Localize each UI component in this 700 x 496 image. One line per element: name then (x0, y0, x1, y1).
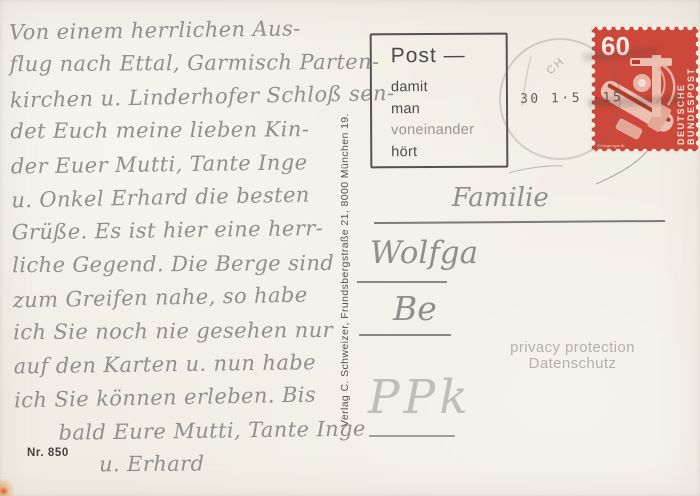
privacy-line-de: Datenschutz (465, 356, 680, 372)
message-line: Von einem herrlichen Aus- (9, 12, 357, 50)
message-line: zum Greifen nahe, so habe (12, 278, 361, 318)
message-line: kirchen u. Linderhofer Schloß sen- (10, 77, 359, 117)
postmark-date: 30 1·5 -15 (520, 90, 624, 107)
message-line: Grüße. Es ist hier eine herr- (12, 212, 360, 250)
slogan-line: voneinander (391, 120, 506, 142)
address-underline (359, 334, 451, 336)
slogan-line: damit (391, 77, 506, 99)
message-line: det Euch meine lieben Kin- (10, 113, 358, 149)
postcard-back: Von einem herrlichen Aus- flug nach Etta… (0, 0, 700, 496)
message-line: bald Eure Mutti, Tante Inge (58, 412, 362, 450)
stamp-country-label: DEUTSCHE BUNDESPOST (676, 27, 696, 145)
publisher-imprint: Verlag C. Schweizer, Frundsbergstraße 21… (339, 88, 351, 452)
privacy-line-en: privacy protection (465, 340, 680, 356)
address-underline (374, 220, 665, 224)
slogan-line: man (391, 98, 506, 120)
postcode-underline (369, 435, 455, 437)
message-line: liche Gegend. Die Berge sind (12, 247, 360, 283)
address-recipient-name: Wolfga (370, 235, 478, 271)
address-recipient-family: Familie (452, 183, 549, 213)
slogan-line: hört (391, 141, 506, 163)
aged-corner-speck (0, 487, 8, 495)
handwritten-message: Von einem herrlichen Aus- flug nach Etta… (9, 12, 363, 485)
postmark-slogan-box: Post — damit man voneinander hört (370, 33, 509, 169)
postcode-scribble: PPk (368, 370, 472, 425)
message-line: u. Erhard (99, 447, 363, 482)
slogan-heading: Post — (391, 44, 506, 69)
address-underline (357, 281, 447, 283)
message-line: flug nach Ettal, Garmisch Parten- (9, 46, 357, 82)
message-line: u. Onkel Erhard die besten (11, 178, 360, 218)
address-city: Be (393, 289, 437, 328)
privacy-watermark: privacy protection Datenschutz (465, 340, 680, 371)
card-number: Nr. 850 (27, 447, 69, 459)
message-line: ich Sie noch nie gesehen nur (13, 313, 361, 349)
